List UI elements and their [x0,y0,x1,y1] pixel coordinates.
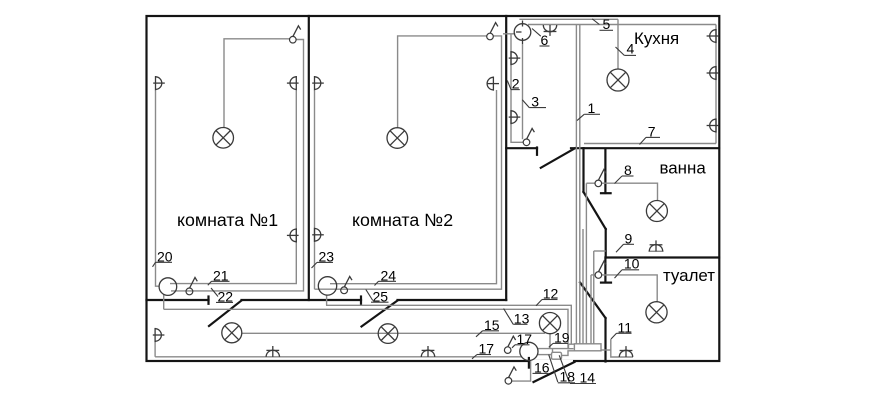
svg-text:1: 1 [588,100,596,116]
svg-text:2: 2 [512,75,520,91]
svg-text:4: 4 [627,41,635,57]
svg-text:5: 5 [603,16,611,32]
svg-text:10: 10 [624,256,640,272]
svg-text:комната №2: комната №2 [352,210,453,230]
svg-text:туалет: туалет [663,266,715,285]
svg-text:ванна: ванна [660,159,707,178]
svg-text:Кухня: Кухня [634,29,679,48]
svg-text:18: 18 [560,369,576,385]
svg-text:комната №1: комната №1 [177,210,278,230]
